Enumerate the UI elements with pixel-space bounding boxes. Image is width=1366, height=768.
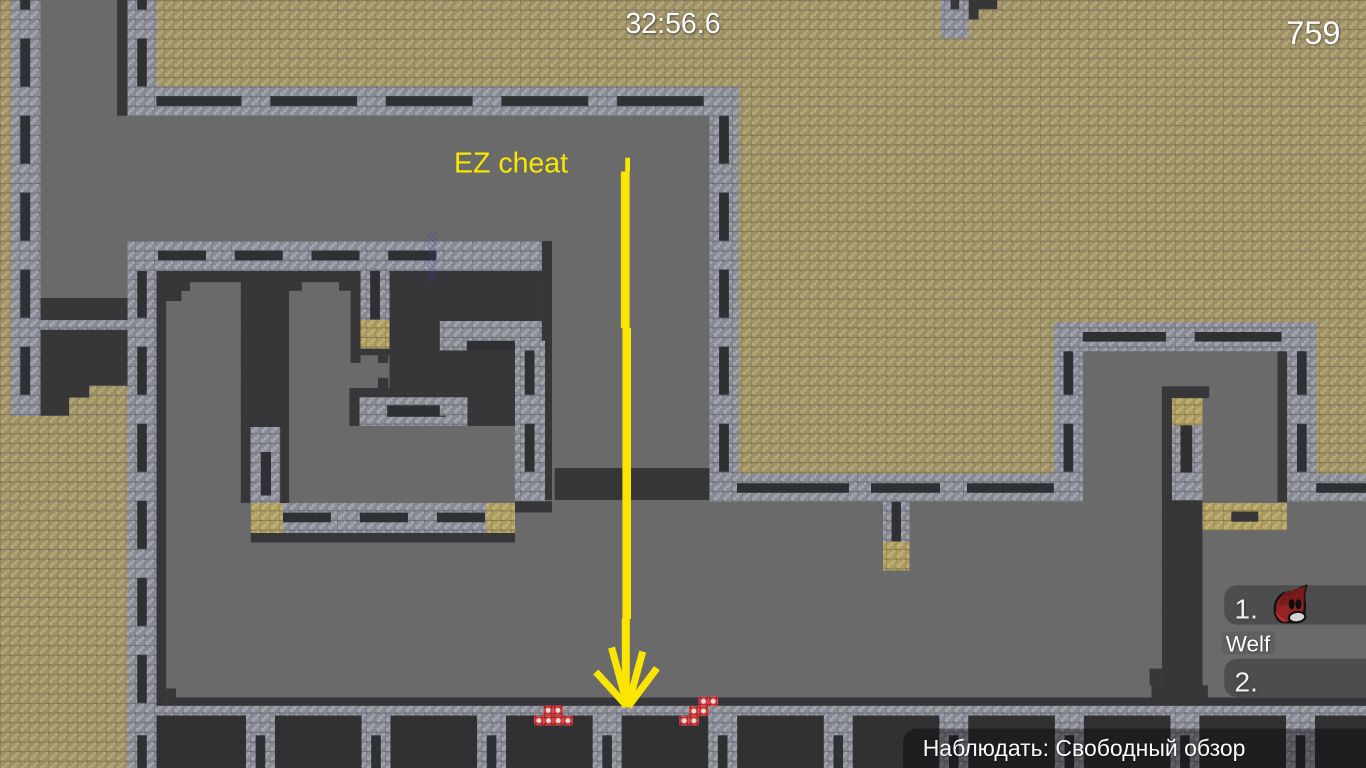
svg-text:Наблюдать: Свободный обзор: Наблюдать: Свободный обзор (923, 735, 1246, 761)
svg-text:1.: 1. (1235, 594, 1258, 625)
svg-text:32:56.6: 32:56.6 (625, 8, 720, 40)
svg-text:759: 759 (1286, 15, 1340, 51)
svg-text:2.: 2. (1235, 666, 1258, 697)
svg-text:Welf: Welf (1226, 631, 1271, 656)
svg-text:EZ cheat: EZ cheat (454, 148, 568, 180)
